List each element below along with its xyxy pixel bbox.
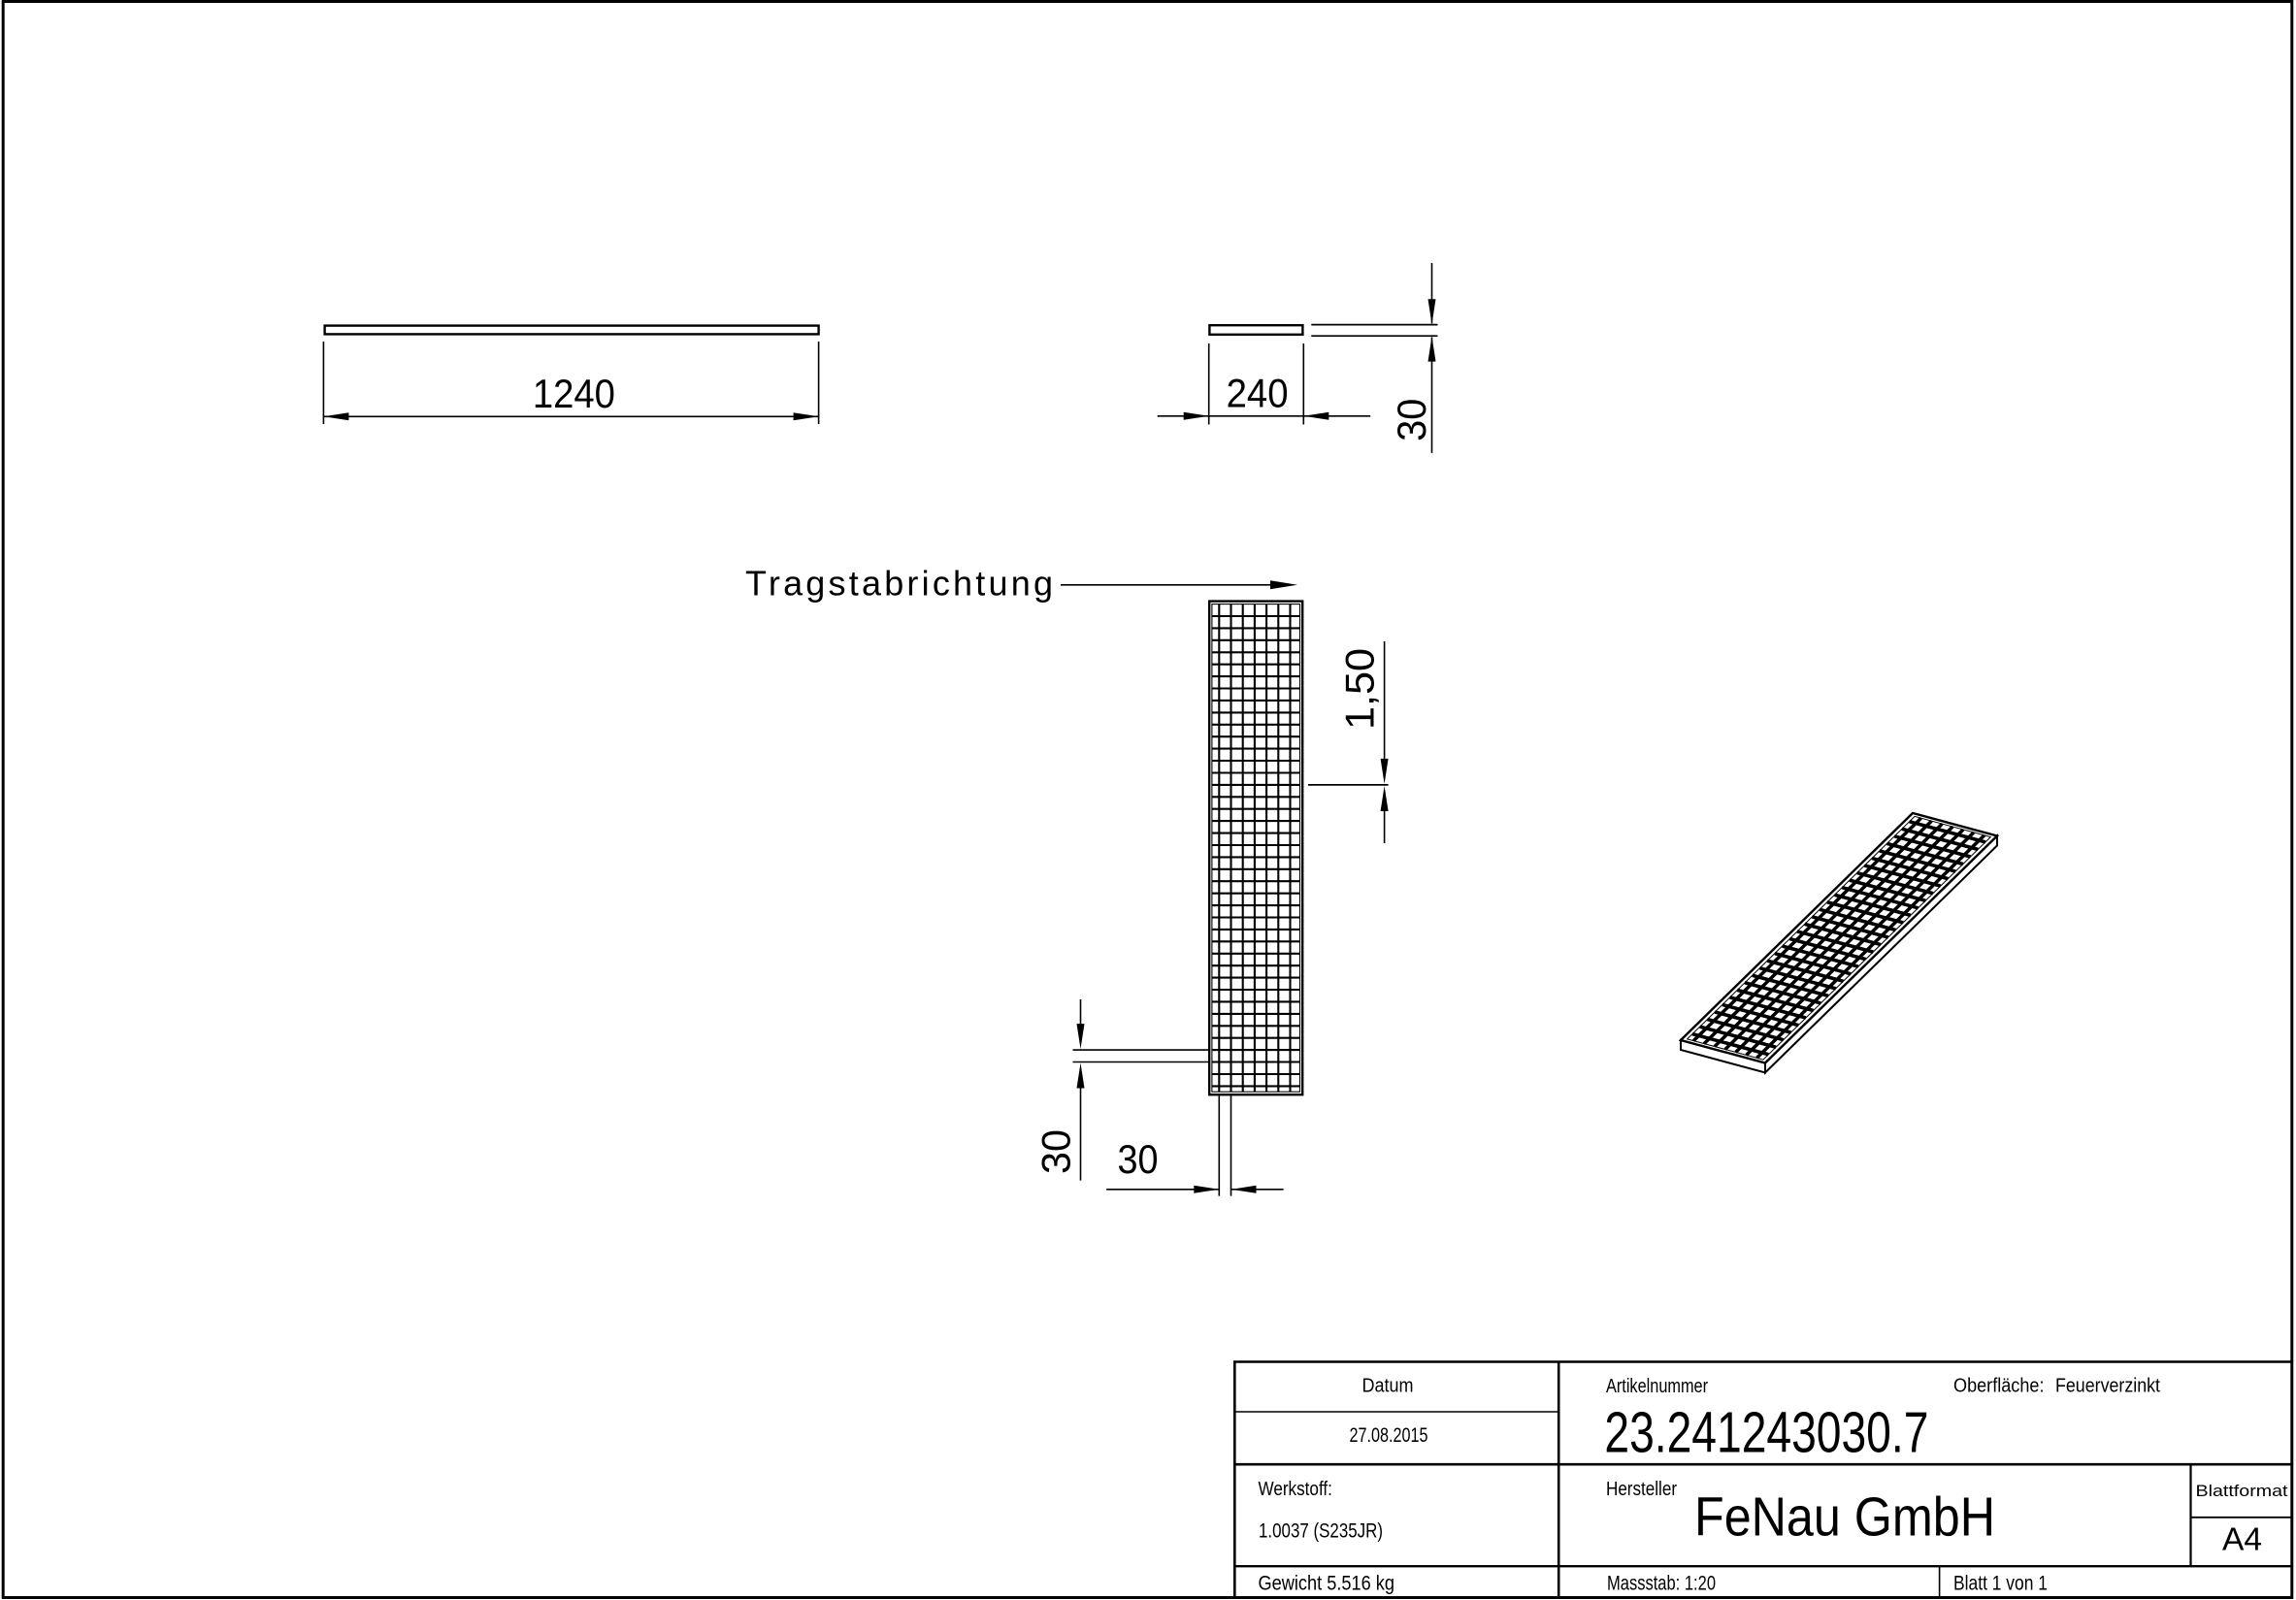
- svg-text:Oberfläche:: Oberfläche:: [1953, 1376, 2045, 1397]
- svg-text:Massstab: 1:20: Massstab: 1:20: [1607, 1572, 1716, 1595]
- svg-text:240: 240: [1227, 371, 1289, 416]
- svg-text:1240: 1240: [533, 371, 615, 416]
- svg-text:Blattformat: Blattformat: [2196, 1482, 2288, 1500]
- svg-text:FeNau GmbH: FeNau GmbH: [1694, 1487, 1995, 1549]
- svg-text:Feuerverzinkt: Feuerverzinkt: [2055, 1376, 2160, 1397]
- svg-text:1.0037 (S235JR): 1.0037 (S235JR): [1259, 1520, 1383, 1543]
- svg-text:30: 30: [1389, 399, 1434, 441]
- svg-text:Hersteller: Hersteller: [1606, 1479, 1677, 1500]
- svg-text:Blatt 1 von 1: Blatt 1 von 1: [1953, 1572, 2048, 1595]
- svg-text:30: 30: [1118, 1136, 1159, 1182]
- svg-text:A4: A4: [2222, 1522, 2262, 1558]
- svg-text:Tragstabrichtung: Tragstabrichtung: [745, 563, 1053, 603]
- svg-text:Artikelnummer: Artikelnummer: [1606, 1376, 1708, 1397]
- svg-text:Gewicht 5.516 kg: Gewicht 5.516 kg: [1259, 1572, 1395, 1595]
- svg-text:Datum: Datum: [1362, 1376, 1414, 1397]
- svg-text:27.08.2015: 27.08.2015: [1350, 1423, 1428, 1447]
- svg-text:Werkstoff:: Werkstoff:: [1259, 1479, 1332, 1500]
- svg-text:30: 30: [1033, 1129, 1079, 1174]
- svg-text:1,50: 1,50: [1337, 648, 1383, 730]
- svg-text:23.241243030.7: 23.241243030.7: [1604, 1400, 1928, 1465]
